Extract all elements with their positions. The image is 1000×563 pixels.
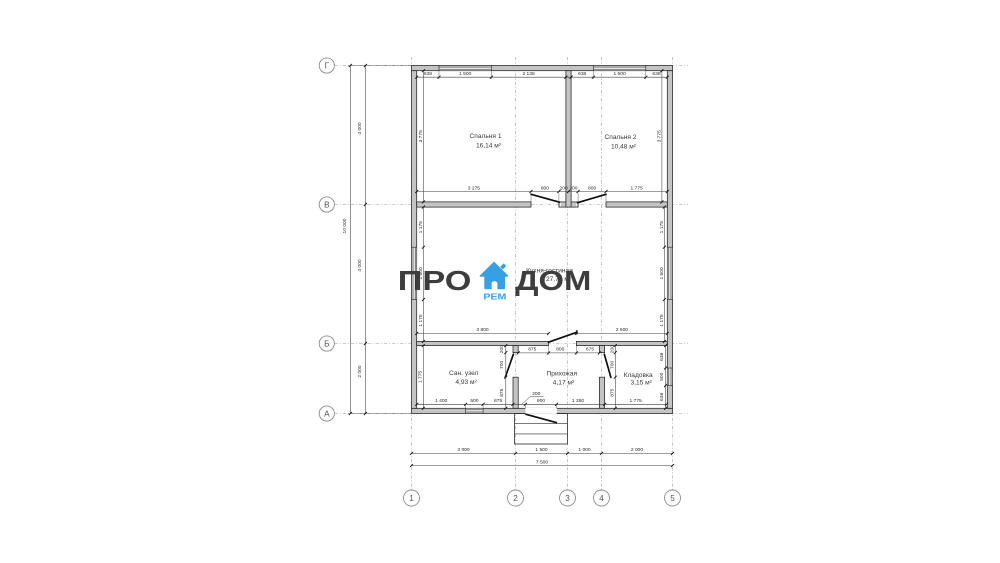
svg-text:1 500: 1 500 <box>613 71 626 77</box>
svg-text:900: 900 <box>537 398 545 404</box>
svg-text:Б: Б <box>324 339 329 348</box>
svg-text:200: 200 <box>499 345 505 353</box>
svg-text:Г: Г <box>325 61 330 70</box>
svg-text:РЕМ: РЕМ <box>483 291 506 301</box>
svg-text:4,17 м²: 4,17 м² <box>553 379 575 386</box>
svg-text:200: 200 <box>532 391 540 397</box>
svg-text:1 175: 1 175 <box>659 314 665 327</box>
svg-text:800: 800 <box>541 185 549 191</box>
svg-text:875: 875 <box>494 398 502 404</box>
svg-text:3 800: 3 800 <box>476 327 489 333</box>
svg-text:2 138: 2 138 <box>522 71 535 77</box>
svg-text:638: 638 <box>652 71 660 77</box>
svg-text:Спальня 2: Спальня 2 <box>605 134 637 141</box>
svg-text:1 400: 1 400 <box>435 398 448 404</box>
svg-text:5: 5 <box>670 494 675 503</box>
svg-text:10,48 м²: 10,48 м² <box>611 144 637 151</box>
svg-text:2 600: 2 600 <box>616 327 629 333</box>
svg-text:1 775: 1 775 <box>629 398 642 404</box>
svg-text:2 000: 2 000 <box>631 447 644 453</box>
svg-text:200: 200 <box>610 345 616 353</box>
svg-text:500: 500 <box>470 398 478 404</box>
svg-text:1 175: 1 175 <box>659 221 665 234</box>
svg-text:А: А <box>324 409 330 418</box>
svg-text:200: 200 <box>569 185 577 191</box>
svg-text:638: 638 <box>578 71 586 77</box>
svg-text:Кладовка: Кладовка <box>624 372 653 379</box>
svg-text:875: 875 <box>610 388 616 396</box>
svg-text:700: 700 <box>499 361 505 369</box>
svg-text:4 000: 4 000 <box>357 122 363 135</box>
svg-text:875: 875 <box>528 347 536 353</box>
svg-text:4,93 м²: 4,93 м² <box>455 379 477 386</box>
svg-text:1 500: 1 500 <box>659 267 665 280</box>
svg-text:4 000: 4 000 <box>357 259 363 272</box>
svg-text:1 175: 1 175 <box>418 314 424 327</box>
svg-text:700: 700 <box>610 361 616 369</box>
svg-text:2: 2 <box>513 494 518 503</box>
svg-text:3 275: 3 275 <box>468 185 481 191</box>
svg-text:3,15 м²: 3,15 м² <box>630 380 652 387</box>
svg-text:3 775: 3 775 <box>418 130 424 143</box>
svg-text:ДОМ: ДОМ <box>515 265 591 296</box>
svg-text:1 175: 1 175 <box>418 221 424 234</box>
svg-text:1 775: 1 775 <box>630 185 643 191</box>
svg-text:3 775: 3 775 <box>656 130 662 143</box>
svg-text:1 000: 1 000 <box>578 447 591 453</box>
svg-text:1 775: 1 775 <box>418 371 424 384</box>
svg-text:1: 1 <box>409 494 414 503</box>
svg-text:4: 4 <box>599 494 604 503</box>
svg-text:ПРО: ПРО <box>398 265 472 296</box>
svg-text:875: 875 <box>499 388 505 396</box>
svg-text:500: 500 <box>659 372 665 380</box>
svg-text:3 000: 3 000 <box>457 447 470 453</box>
svg-text:1 250: 1 250 <box>572 398 585 404</box>
svg-text:2 000: 2 000 <box>357 365 363 378</box>
svg-text:Прихожая: Прихожая <box>547 371 578 378</box>
svg-text:Сан. узел: Сан. узел <box>449 370 479 377</box>
svg-text:200: 200 <box>560 185 568 191</box>
svg-text:3: 3 <box>565 494 570 503</box>
svg-text:1 500: 1 500 <box>459 71 472 77</box>
svg-text:1 500: 1 500 <box>535 447 548 453</box>
svg-text:16,14 м²: 16,14 м² <box>476 142 502 149</box>
svg-text:7 500: 7 500 <box>536 459 549 465</box>
svg-text:В: В <box>324 200 330 209</box>
svg-text:10 000: 10 000 <box>342 218 348 233</box>
svg-text:638: 638 <box>424 71 432 77</box>
svg-text:800: 800 <box>588 185 596 191</box>
svg-text:Спальня 1: Спальня 1 <box>470 133 502 140</box>
svg-text:638: 638 <box>659 393 665 401</box>
svg-text:675: 675 <box>586 347 594 353</box>
svg-text:638: 638 <box>659 352 665 360</box>
svg-text:800: 800 <box>556 347 564 353</box>
